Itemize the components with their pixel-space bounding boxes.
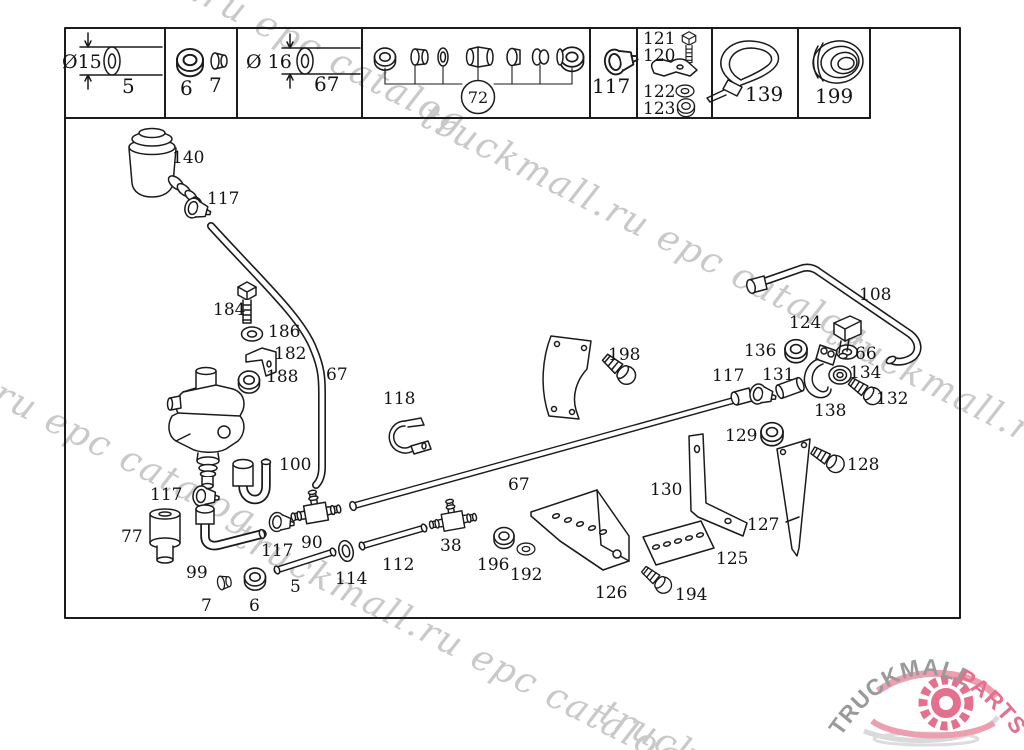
- legend-cell-bolt-set: 121 120 122 123: [643, 29, 697, 119]
- part-label-188: 188: [266, 367, 298, 387]
- dim-arrow-icon: [85, 33, 91, 47]
- legend-part-label: 5: [122, 74, 135, 98]
- part-label-128: 128: [847, 455, 879, 475]
- legend-part-label: 139: [745, 82, 783, 106]
- part-112-tube: [358, 523, 427, 550]
- ring-icon: [438, 48, 448, 66]
- legend-cell-117: 117: [592, 45, 640, 98]
- union-nut-icon: [375, 48, 396, 70]
- legend-part-label: 120: [643, 46, 675, 66]
- part-136-nut: [785, 340, 807, 363]
- part-label-194: 194: [675, 585, 707, 605]
- part-label-114: 114: [335, 569, 367, 589]
- part-label-118: 118: [383, 389, 415, 409]
- part-label-124: 124: [789, 313, 821, 333]
- part-label-198: 198: [608, 345, 640, 365]
- clamp-icon: [603, 45, 640, 76]
- part-label-100: 100: [279, 455, 311, 475]
- frame: [65, 28, 960, 618]
- part-label-134: 134: [849, 363, 881, 383]
- legend-cell-67: Ø 16 67: [246, 34, 360, 96]
- part-label-182: 182: [274, 344, 306, 364]
- bolt-icon: [682, 32, 696, 63]
- part-label-130: 130: [650, 480, 682, 500]
- legend-cell-72: 72: [375, 47, 584, 114]
- dim-label: Ø15: [62, 51, 102, 73]
- part-label-129: 129: [725, 426, 757, 446]
- part-label-192: 192: [510, 565, 542, 585]
- part-label-117: 117: [261, 541, 293, 561]
- part-125-strip: [643, 521, 714, 565]
- sleeve-icon: [507, 49, 520, 66]
- dim-arrow-icon: [287, 74, 293, 88]
- nut-icon: [177, 49, 203, 76]
- part-6-nut: [245, 568, 266, 590]
- part-label-5: 5: [290, 577, 301, 597]
- part-label-132: 132: [876, 389, 908, 409]
- part-117-clamp: [748, 383, 777, 407]
- part-label-117: 117: [150, 485, 182, 505]
- legend-part-label: 117: [592, 74, 630, 98]
- part-194-bolt: [639, 563, 675, 597]
- part-label-99: 99: [186, 563, 208, 583]
- washer-icon: [676, 85, 694, 97]
- part-127-bracket: [777, 439, 810, 556]
- legend-part-label: 7: [209, 73, 222, 97]
- legend-cell-6-7: 6 7: [177, 49, 227, 100]
- legend-cell-199: 199: [810, 38, 865, 108]
- part-label-38: 38: [440, 536, 462, 556]
- dim-arrow-icon: [287, 34, 293, 48]
- legend-part-label: 6: [180, 76, 193, 100]
- part-186-washer: [242, 327, 263, 341]
- part-label-108: 108: [859, 285, 891, 305]
- part-label-66: 66: [855, 344, 877, 364]
- part-label-184: 184: [213, 300, 245, 320]
- part-label-67: 67: [326, 365, 348, 385]
- part-99-hose: [196, 505, 266, 546]
- part-128-bolt: [808, 443, 847, 476]
- legend-part-label: 72: [468, 88, 488, 107]
- part-126-bracket: [531, 490, 629, 570]
- part-label-7: 7: [201, 596, 212, 616]
- part-label-117: 117: [207, 189, 239, 209]
- nut-icon: [678, 99, 695, 117]
- legend-part-label: 67: [314, 72, 339, 96]
- part-label-186: 186: [268, 322, 300, 342]
- part-90-tee: [287, 486, 342, 526]
- part-label-131: 131: [762, 365, 794, 385]
- part-label-90: 90: [301, 533, 323, 553]
- union-icon: [467, 47, 494, 67]
- part-label-138: 138: [814, 401, 846, 421]
- legend-cell-5: Ø15 5: [62, 33, 162, 98]
- part-label-117: 117: [712, 366, 744, 386]
- legend-cell-139: 139: [707, 41, 783, 106]
- part-118-clamp: [389, 418, 431, 454]
- part-label-67: 67: [508, 475, 530, 495]
- olive-icon: [533, 49, 549, 65]
- parts-catalog-page: truckmall.ru epc catalog truckmall.ru ep…: [0, 0, 1024, 750]
- part-38-tee: [426, 495, 478, 533]
- part-134-grommet: [829, 366, 851, 384]
- part-label-136: 136: [744, 341, 776, 361]
- part-117-clamp: [192, 485, 220, 507]
- part-192-washer: [517, 543, 535, 555]
- dim-arrow-icon: [85, 75, 91, 89]
- fitting-icon: [211, 53, 227, 69]
- union-nut-icon: [557, 47, 584, 71]
- part-77-cylinder: [150, 509, 180, 563]
- legend-part-label: 199: [815, 84, 853, 108]
- part-label-125: 125: [716, 549, 748, 569]
- dim-label: Ø 16: [246, 51, 292, 73]
- truckmall-logo: TRUCKMALL PARTS: [826, 645, 1024, 750]
- part-196-nut: [494, 528, 514, 549]
- part-label-77: 77: [121, 527, 143, 547]
- part-114-ring: [337, 539, 356, 563]
- part-label-6: 6: [249, 596, 260, 616]
- part-mounting-plate: [543, 336, 591, 419]
- part-label-196: 196: [477, 555, 509, 575]
- legend-part-label: 123: [643, 99, 675, 119]
- exploded-parts-diagram: Ø15 5 6 7 Ø 16 67: [0, 0, 1024, 750]
- part-129-nut: [761, 423, 783, 446]
- part-130-bracket: [689, 434, 747, 536]
- part-188-nut: [239, 371, 260, 393]
- part-100-hose: [233, 460, 271, 500]
- part-label-140: 140: [172, 148, 204, 168]
- part-label-126: 126: [595, 583, 627, 603]
- part-label-112: 112: [382, 555, 414, 575]
- part-7-fitting: [216, 575, 232, 591]
- sleeve-icon: [411, 49, 428, 65]
- part-label-127: 127: [747, 515, 779, 535]
